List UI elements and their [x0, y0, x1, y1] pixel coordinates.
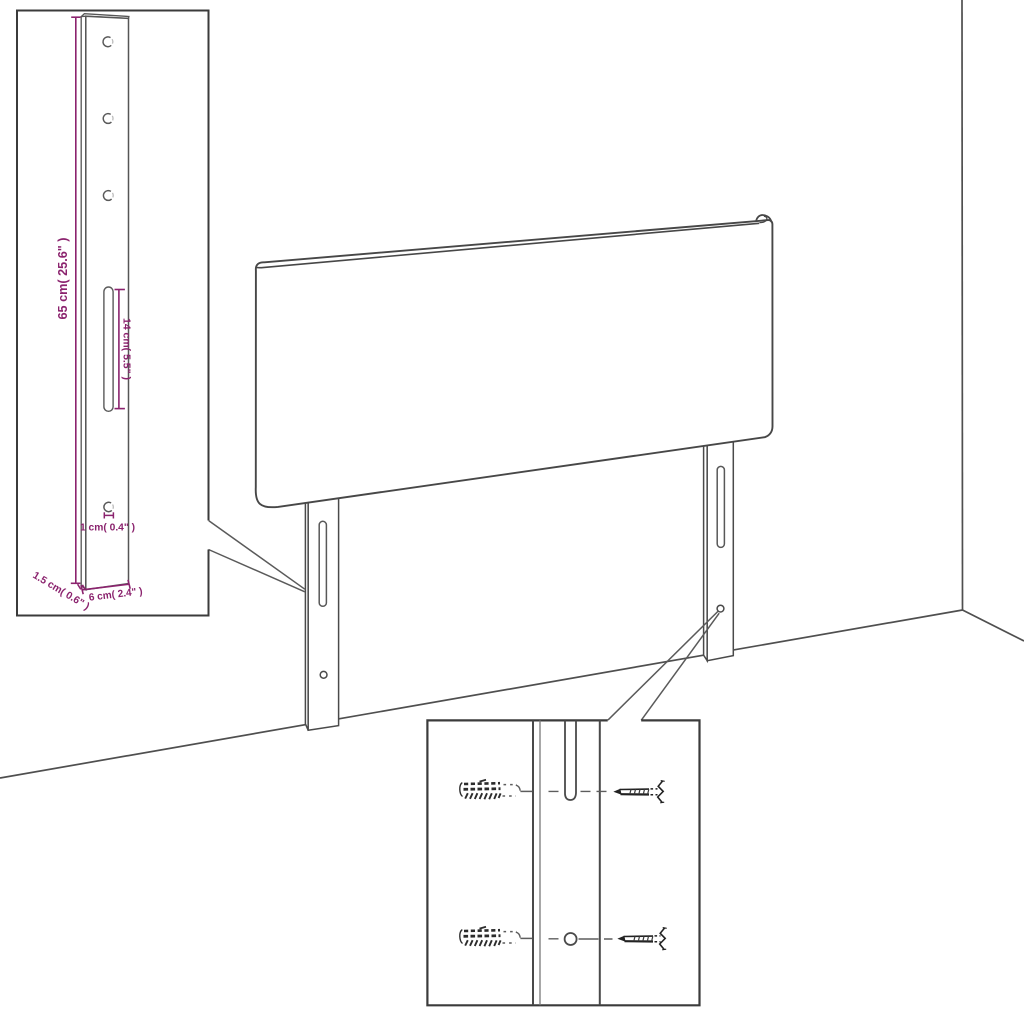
svg-text:1 cm( 0.4" ): 1 cm( 0.4" )	[80, 523, 135, 534]
svg-text:65 cm( 25.6" ): 65 cm( 25.6" )	[55, 238, 70, 320]
svg-text:14 cm( 5.5" ): 14 cm( 5.5" )	[120, 318, 132, 380]
